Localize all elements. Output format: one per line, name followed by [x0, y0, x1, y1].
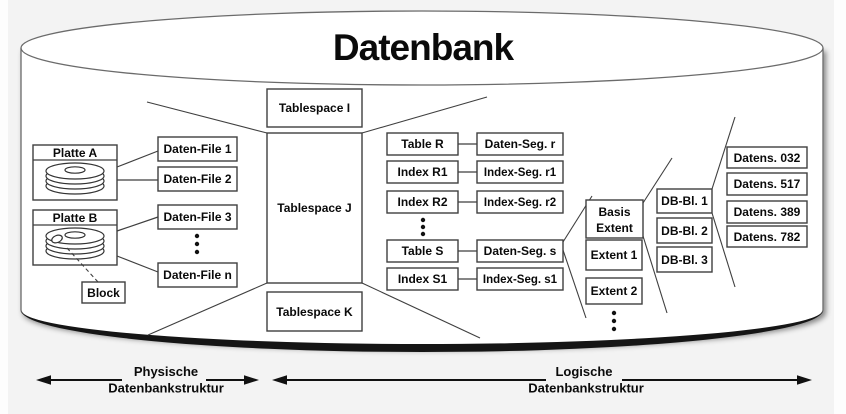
- data-file-2: Daten-File 2: [158, 167, 237, 191]
- record-517: Datens. 517: [727, 173, 807, 195]
- tablespace-j: Tablespace J: [267, 133, 362, 283]
- arrowhead-right-icon: [797, 375, 812, 385]
- index-r1: Index R1: [387, 161, 458, 183]
- table-s: Table S: [387, 240, 458, 262]
- index-seg-r1: Index-Seg. r1: [477, 161, 563, 183]
- extent-1-box: Extent 1: [586, 240, 642, 270]
- tablespace-k-label: Tablespace K: [276, 305, 353, 319]
- daten-seg-s-label: Daten-Seg. s: [484, 244, 557, 258]
- diagram-canvas: Datenbank Platte A Platte B: [0, 0, 846, 414]
- daten-seg-s: Daten-Seg. s: [477, 240, 563, 262]
- legend: Physische Datenbankstruktur Logische Dat…: [36, 364, 812, 396]
- table-s-label: Table S: [402, 244, 444, 258]
- data-file-3: Daten-File 3: [158, 205, 237, 229]
- tablespace-i-label: Tablespace I: [279, 101, 350, 115]
- block-label: Block: [87, 286, 120, 300]
- data-file-1-label: Daten-File 1: [163, 142, 231, 156]
- index-r2-label: Index R2: [397, 195, 447, 209]
- record-032-label: Datens. 032: [734, 151, 801, 165]
- tablespace-k: Tablespace K: [267, 292, 362, 331]
- legend-physical-line2: Datenbankstruktur: [108, 381, 224, 396]
- daten-seg-r: Daten-Seg. r: [477, 133, 563, 155]
- logical-structure-arrow: Logische Datenbankstruktur: [272, 364, 812, 396]
- index-s1: Index S1: [387, 268, 458, 290]
- table-ellipsis: [421, 218, 425, 236]
- record-782: Datens. 782: [727, 226, 807, 247]
- legend-logical-line1: Logische: [555, 364, 612, 379]
- table-r-label: Table R: [401, 137, 444, 151]
- basis-extent-box: Basis Extent: [586, 200, 643, 238]
- db-block-3-label: DB-Bl. 3: [661, 253, 708, 267]
- tablespace-i: Tablespace I: [267, 89, 362, 127]
- index-r1-label: Index R1: [397, 165, 447, 179]
- legend-physical-line1: Physische: [134, 364, 198, 379]
- index-seg-r2: Index-Seg. r2: [477, 191, 563, 213]
- page-right-margin: [834, 0, 846, 414]
- data-file-n: Daten-File n: [158, 263, 237, 287]
- block-box: Block: [82, 282, 125, 303]
- db-block-2-label: DB-Bl. 2: [661, 224, 708, 238]
- disk-stack-icon: [46, 228, 104, 259]
- record-389-label: Datens. 389: [734, 205, 801, 219]
- data-file-n-label: Daten-File n: [163, 268, 232, 282]
- basis-extent-line1: Basis: [598, 205, 630, 219]
- data-file-2-label: Daten-File 2: [163, 172, 231, 186]
- disk-platte-b: Platte B: [33, 210, 117, 265]
- index-seg-s1-label: Index-Seg. s1: [483, 274, 558, 286]
- index-r2: Index R2: [387, 191, 458, 213]
- tablespace-j-label: Tablespace J: [277, 201, 351, 215]
- db-block-3: DB-Bl. 3: [657, 247, 712, 272]
- record-032: Datens. 032: [727, 147, 807, 168]
- disk-stack-icon: [46, 163, 104, 194]
- database-structure-diagram: Datenbank Platte A Platte B: [0, 0, 846, 414]
- basis-extent-line2: Extent: [596, 221, 633, 235]
- record-389: Datens. 389: [727, 201, 807, 223]
- data-file-ellipsis: [195, 234, 199, 254]
- platte-b-label: Platte B: [53, 211, 98, 225]
- index-seg-s1: Index-Seg. s1: [477, 268, 563, 290]
- index-seg-r2-label: Index-Seg. r2: [484, 197, 556, 209]
- db-block-2: DB-Bl. 2: [657, 218, 712, 243]
- index-seg-r1-label: Index-Seg. r1: [484, 167, 557, 179]
- legend-logical-line2: Datenbankstruktur: [528, 381, 644, 396]
- extent-ellipsis: [612, 311, 616, 331]
- extent-2-box: Extent 2: [586, 278, 642, 304]
- platte-a-label: Platte A: [53, 146, 98, 160]
- disk-platte-a: Platte A: [33, 145, 117, 200]
- index-s1-label: Index S1: [398, 272, 448, 286]
- db-block-1: DB-Bl. 1: [657, 189, 712, 213]
- arrowhead-left-icon: [36, 375, 51, 385]
- arrowhead-left-icon: [272, 375, 287, 385]
- db-block-1-label: DB-Bl. 1: [661, 194, 708, 208]
- physical-structure-arrow: Physische Datenbankstruktur: [36, 364, 259, 396]
- data-file-3-label: Daten-File 3: [163, 210, 231, 224]
- data-file-1: Daten-File 1: [158, 137, 237, 161]
- page-left-margin: [0, 0, 8, 414]
- extent-2-label: Extent 2: [591, 284, 638, 298]
- arrowhead-right-icon: [244, 375, 259, 385]
- daten-seg-r-label: Daten-Seg. r: [485, 137, 556, 151]
- extent-1-label: Extent 1: [591, 248, 638, 262]
- diagram-title: Datenbank: [333, 27, 515, 68]
- table-r: Table R: [387, 133, 458, 155]
- record-517-label: Datens. 517: [734, 177, 801, 191]
- record-782-label: Datens. 782: [734, 230, 801, 244]
